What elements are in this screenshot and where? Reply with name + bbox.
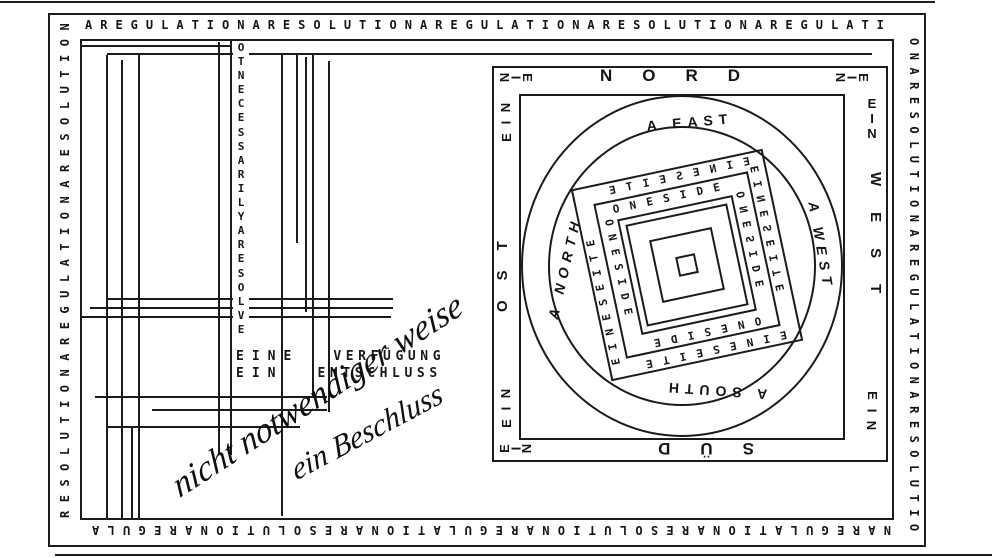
border-text-left: RESOLUTIONAREGULATIONARESOLUTION (58, 13, 72, 518)
label-ost: OST (494, 202, 511, 312)
label-sued: SÜD (596, 438, 786, 458)
grid-line (230, 41, 232, 455)
grid-line (296, 55, 298, 243)
grid-line (107, 53, 872, 55)
border-text-top: AREGULATIONARESOLUTIONAREGULATIONARESOLU… (85, 18, 900, 32)
grid-line (131, 427, 133, 519)
grid-line (121, 60, 123, 519)
ein-corner-bottom-left: EIN (500, 441, 532, 456)
nested-squares-group: EINESEITE EINESEITE EINESEITE EINESEITE … (571, 149, 803, 381)
ein-left-column-bottom: EIN (498, 386, 514, 431)
photo-edge-top (0, 1, 935, 3)
ein-left-column-top: EIN (498, 100, 514, 145)
ein-right-column-top: EIN (864, 96, 880, 141)
grid-line (82, 45, 230, 47)
grid-line (138, 55, 140, 519)
artwork-canvas: AREGULATIONARESOLUTIONAREGULATIONARESOLU… (0, 0, 992, 558)
grid-line (281, 55, 283, 516)
ein-right-column-bottom: EIN (864, 388, 880, 433)
vertical-phrase-column: OTNECESSARILYARESOLVE (233, 41, 249, 337)
nested-square-6 (675, 253, 699, 277)
grid-line (305, 57, 307, 312)
label-nord: NORD (585, 66, 785, 86)
ein-corner-top-left: EIN (500, 70, 532, 85)
photo-edge-bottom (55, 554, 992, 556)
grid-line (108, 298, 393, 300)
ein-corner-top-right: EIN (836, 70, 868, 85)
grid-line (312, 55, 314, 398)
german-row-2-word-1: EIN (236, 366, 283, 381)
grid-line (218, 42, 220, 455)
german-row-1-word-1: EINE (236, 349, 299, 364)
border-text-bottom: NAREGULATIONARESOLUTIONAREGULATIONARESOL… (85, 523, 891, 537)
border-text-right: ONARESOLUTIONAREGULATIONARESOLUTIO (907, 38, 921, 543)
grid-line (106, 55, 108, 519)
label-west: WEST (867, 172, 884, 342)
